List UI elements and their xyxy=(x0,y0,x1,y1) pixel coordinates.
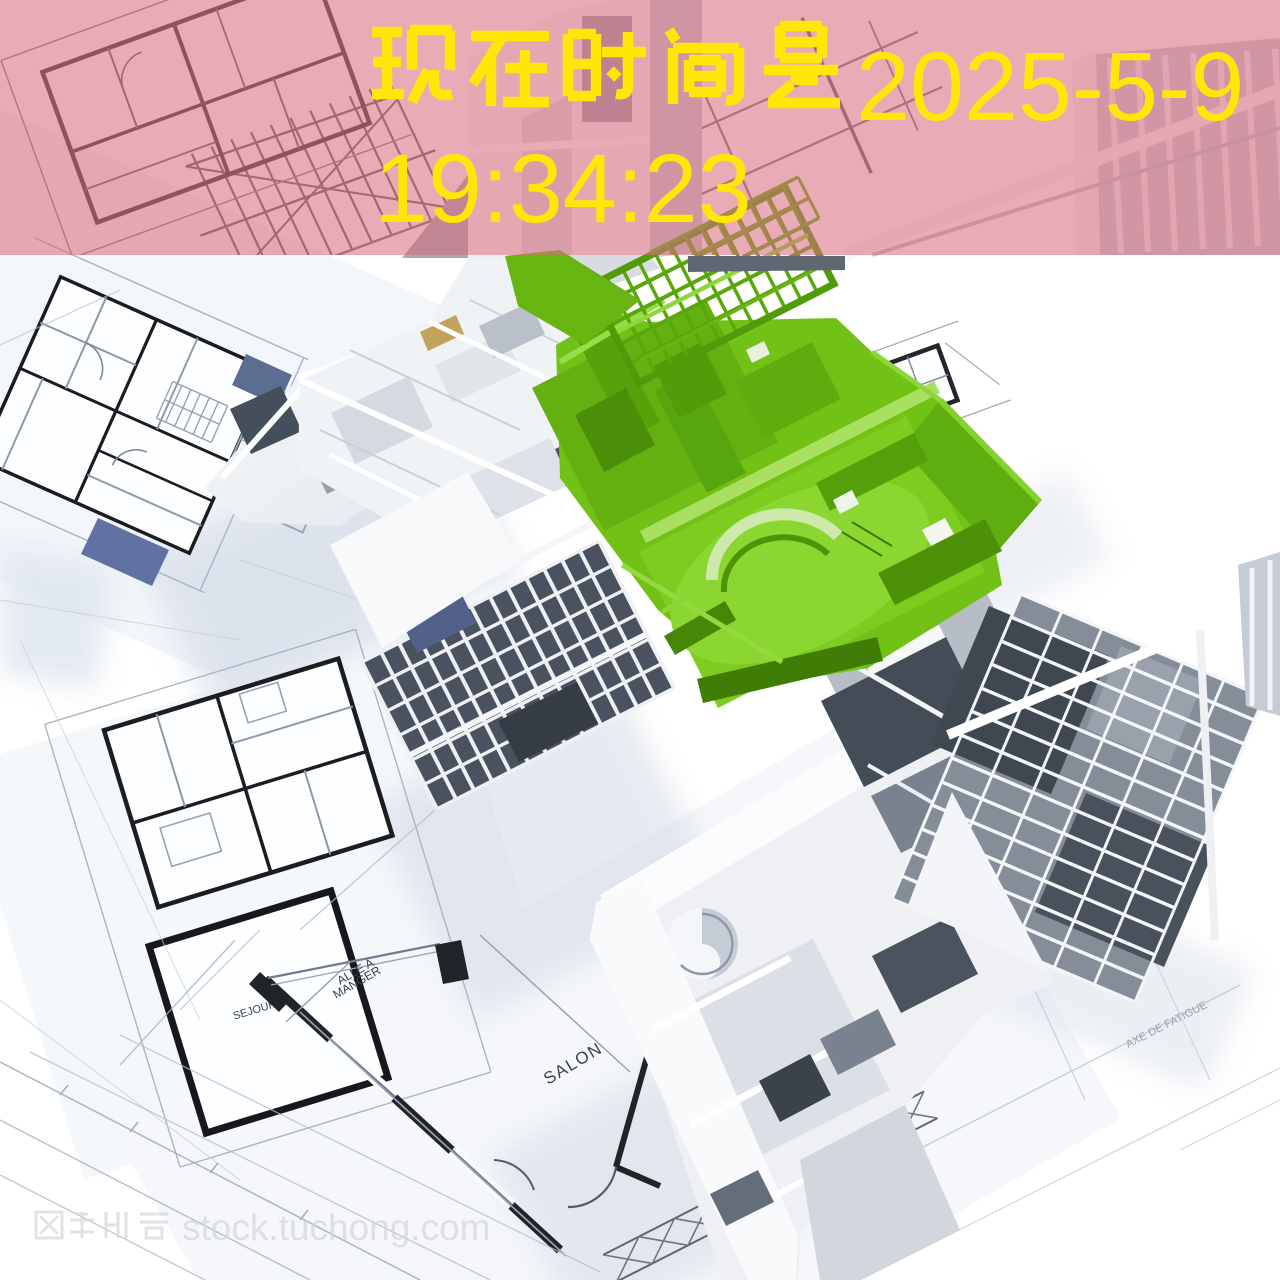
svg-text:stock.tuchong.com: stock.tuchong.com xyxy=(182,1207,490,1248)
svg-text:2025-5-9: 2025-5-9 xyxy=(856,32,1244,141)
svg-text:19:34:23: 19:34:23 xyxy=(374,134,752,243)
